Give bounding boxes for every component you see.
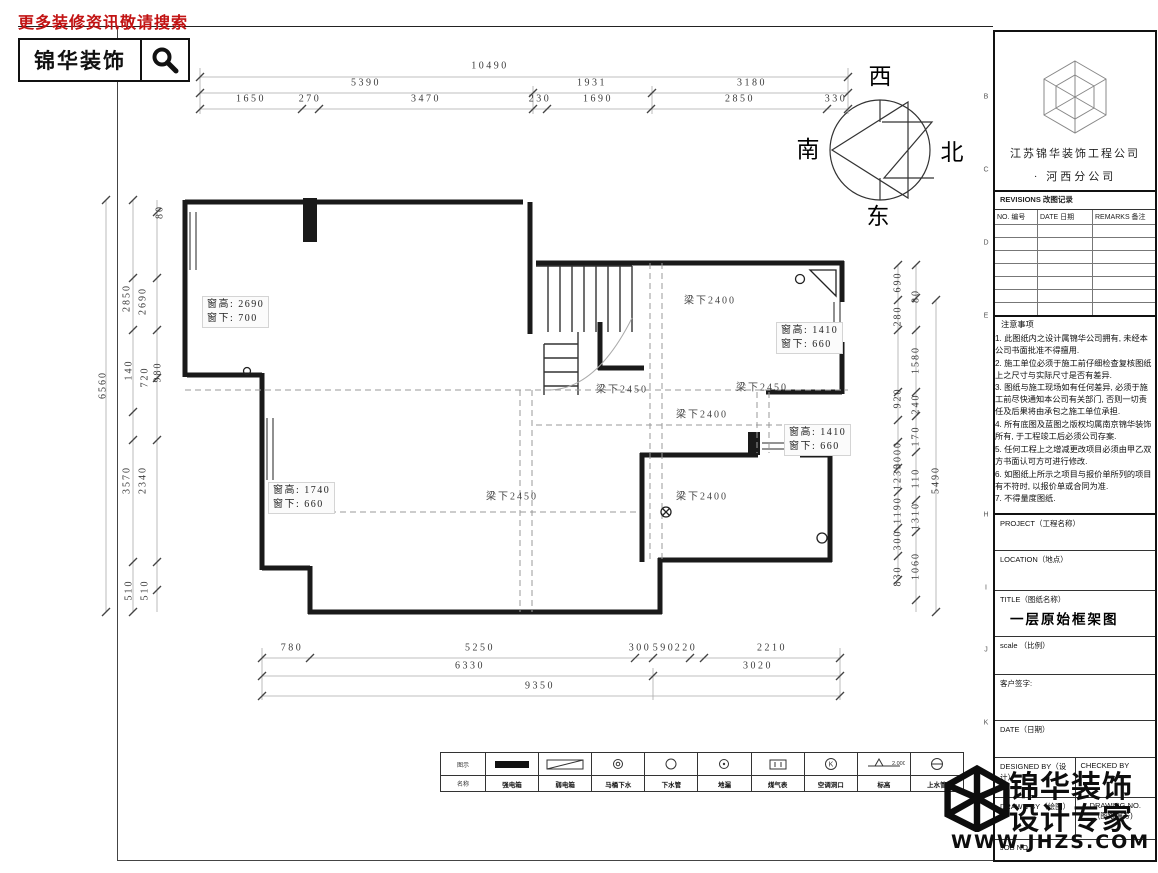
dim-label: 220 bbox=[675, 643, 698, 654]
revision-empty-row bbox=[995, 251, 1155, 264]
legend-item-meter-box: 煤气表 bbox=[752, 753, 805, 791]
compass-label: 东 bbox=[867, 197, 890, 231]
dim-label: 3020 bbox=[743, 661, 773, 672]
level-mark-icon: 2.000 bbox=[863, 756, 905, 772]
beam-label: 梁下2450 bbox=[486, 488, 538, 503]
revisions-col-remarks: REMARKS 备注 bbox=[1093, 210, 1155, 224]
window-spec-label: 窗高: 1410窗下: 660 bbox=[784, 424, 851, 456]
compass-icon bbox=[830, 100, 934, 200]
revisions-title: REVISIONS 改图记录 bbox=[995, 192, 1155, 210]
dim-label: 140 bbox=[124, 360, 135, 381]
dim-label: 80 bbox=[155, 205, 166, 219]
dim-label: 780 bbox=[281, 643, 304, 654]
dim-label: 2210 bbox=[757, 643, 787, 654]
dim-label: H bbox=[983, 512, 988, 519]
watermark-url: WWW.JHZS.COM bbox=[951, 831, 1150, 853]
dim-label: 590 bbox=[653, 643, 676, 654]
note-item: 3. 图纸与施工现场如有任何差异, 必须于施工前尽快通知本公司有关部门, 否则一… bbox=[995, 382, 1155, 418]
title-field: TITLE（图纸名称） 一层原始框架图 bbox=[995, 591, 1155, 637]
company-branch: · 河西分公司 bbox=[1034, 168, 1116, 184]
legend-item-level-mark: 2.000标高 bbox=[858, 753, 911, 791]
beam-label: 梁下2400 bbox=[676, 488, 728, 503]
dim-label: 1310 bbox=[911, 502, 922, 530]
dim-label: 240 bbox=[911, 394, 922, 415]
note-item: 4. 所有底图及蓝图之版权均属南京锦华装饰所有, 于工程竣工后必须公司存案. bbox=[995, 419, 1155, 443]
dim-label: 1580 bbox=[911, 346, 922, 374]
circle-k-icon: K bbox=[810, 756, 852, 772]
revisions-col-date: DATE 日期 bbox=[1038, 210, 1093, 224]
window-spec-label: 窗高: 1410窗下: 660 bbox=[776, 322, 843, 354]
dim-label: B bbox=[984, 94, 989, 101]
dim-label: 1060 bbox=[911, 552, 922, 580]
solid-rect-icon bbox=[491, 756, 533, 772]
note-item: 2. 施工单位必须于施工前仔细检查复核图纸上之尺寸与实际尺寸是否有差异. bbox=[995, 358, 1155, 382]
compass-label: 北 bbox=[941, 133, 964, 167]
note-item: 7. 不得量度图纸. bbox=[995, 493, 1155, 505]
watermark: 锦华装饰 设计专家 WWW.JHZS.COM bbox=[933, 760, 1158, 860]
dim-label: K bbox=[984, 720, 989, 727]
dim-label: 980 bbox=[153, 362, 164, 383]
dim-label: 270 bbox=[299, 94, 322, 105]
circle-dot-icon bbox=[703, 756, 745, 772]
dim-label: 3470 bbox=[411, 94, 441, 105]
dim-label: 80 bbox=[911, 289, 922, 303]
beam-label: 梁下2450 bbox=[596, 381, 648, 396]
dim-label: 300 bbox=[629, 643, 652, 654]
project-field: PROJECT（工程名称） bbox=[995, 515, 1155, 551]
beam-label: 梁下2400 bbox=[684, 292, 736, 307]
dim-label: 1650 bbox=[236, 94, 266, 105]
legend-symbol-header: 图示 bbox=[457, 760, 469, 769]
compass-label: 西 bbox=[869, 57, 892, 91]
revisions-col-no: NO. 编号 bbox=[995, 210, 1038, 224]
revision-empty-row bbox=[995, 264, 1155, 277]
legend-item-circle-double: 马桶下水 bbox=[592, 753, 645, 791]
dim-label: 830 bbox=[893, 566, 904, 587]
circle-double-icon bbox=[597, 756, 639, 772]
dim-label: 3570 bbox=[122, 466, 133, 494]
dim-label: 3180 bbox=[737, 78, 767, 89]
dim-label: 5390 bbox=[351, 78, 381, 89]
dim-label: D bbox=[983, 240, 988, 247]
drawing-sheet: 更多装修资讯敬请搜索 锦华装饰 bbox=[0, 0, 1158, 873]
dim-label: 5490 bbox=[931, 466, 942, 494]
window-spec-label: 窗高: 1740窗下: 660 bbox=[268, 482, 335, 514]
compass-label: 南 bbox=[797, 130, 820, 164]
revision-empty-row bbox=[995, 238, 1155, 251]
dim-label: 230 bbox=[529, 94, 552, 105]
legend-item-circle: 下水管 bbox=[645, 753, 698, 791]
dim-label: 1931 bbox=[577, 78, 607, 89]
client-sign-field: 客户签字: bbox=[995, 675, 1155, 721]
note-item: 1. 此图纸内之设计属锦华公司拥有, 未经本公司书面批准不得擅用. bbox=[995, 333, 1155, 357]
diag-rect-icon bbox=[544, 756, 586, 772]
dim-label: 2850 bbox=[122, 284, 133, 312]
dim-label: 330 bbox=[825, 94, 848, 105]
dim-label: I bbox=[985, 585, 987, 592]
dim-label: 720 bbox=[140, 367, 151, 388]
dim-label: 920 bbox=[893, 388, 904, 409]
legend-item-diag-rect: 弱电箱 bbox=[539, 753, 592, 791]
dim-label: 510 bbox=[124, 580, 135, 601]
dim-label: 10490 bbox=[471, 61, 509, 72]
dim-label: 5250 bbox=[465, 643, 495, 654]
dim-label: 280 bbox=[893, 306, 904, 327]
floor-plan-drawing bbox=[0, 0, 1158, 873]
revision-empty-row bbox=[995, 303, 1155, 315]
company-cube-logo bbox=[1036, 57, 1114, 137]
revision-empty-row bbox=[995, 225, 1155, 238]
beam-label: 梁下2450 bbox=[736, 379, 788, 394]
notes-section: 注意事项 1. 此图纸内之设计属锦华公司拥有, 未经本公司书面批准不得擅用.2.… bbox=[995, 317, 1155, 515]
location-field: LOCATION（地点） bbox=[995, 551, 1155, 591]
dim-label: C bbox=[983, 167, 988, 174]
dim-label: 9350 bbox=[525, 681, 555, 692]
dim-label: 2690 bbox=[138, 287, 149, 315]
dim-label: 6560 bbox=[98, 371, 109, 399]
legend-name-header: 名称 bbox=[457, 779, 469, 788]
dim-label: J bbox=[984, 647, 988, 654]
meter-box-icon bbox=[757, 756, 799, 772]
window-spec-label: 窗高: 2690窗下: 700 bbox=[202, 296, 269, 328]
circle-icon bbox=[650, 756, 692, 772]
svg-text:2.000: 2.000 bbox=[892, 761, 905, 767]
company-logo-section: 江苏锦华装饰工程公司 · 河西分公司 bbox=[995, 32, 1155, 192]
dim-label: 510 bbox=[140, 580, 151, 601]
dim-label: 110 bbox=[911, 468, 922, 489]
svg-text:K: K bbox=[828, 762, 833, 769]
dim-label: 2340 bbox=[138, 466, 149, 494]
revisions-table: NO. 编号 DATE 日期 REMARKS 备注 bbox=[995, 210, 1155, 317]
dim-label: 300 bbox=[893, 530, 904, 551]
legend-item-circle-dot: 地漏 bbox=[698, 753, 751, 791]
notes-title: 注意事项 bbox=[1001, 319, 1155, 331]
date-field: DATE（日期） bbox=[995, 721, 1155, 758]
scale-field: scale （比例） bbox=[995, 637, 1155, 675]
title-block: 江苏锦华装饰工程公司 · 河西分公司 REVISIONS 改图记录 NO. 编号… bbox=[993, 30, 1157, 862]
legend-table: 图示名称强电箱弱电箱马桶下水下水管地漏煤气表K空调洞口2.000标高上水管 bbox=[440, 752, 964, 792]
dim-label: 1190 bbox=[893, 496, 904, 524]
dim-label: 1690 bbox=[583, 94, 613, 105]
revision-empty-row bbox=[995, 277, 1155, 290]
watermark-cube-logo bbox=[941, 764, 1013, 832]
note-item: 6. 如图纸上所示之项目与报价单所列的项目有不符时, 以报价单或合同为准. bbox=[995, 469, 1155, 493]
dim-label: 6330 bbox=[455, 661, 485, 672]
dim-label: 1230 bbox=[893, 462, 904, 490]
drawing-title: 一层原始框架图 bbox=[1010, 608, 1150, 628]
beam-label: 梁下2400 bbox=[676, 406, 728, 421]
revision-empty-row bbox=[995, 290, 1155, 303]
legend-item-circle-k: K空调洞口 bbox=[805, 753, 858, 791]
dim-label: 690 bbox=[893, 272, 904, 293]
dim-label: E bbox=[984, 313, 989, 320]
note-item: 5. 任何工程上之增减更改项目必须由甲乙双方书面认可方可进行修改. bbox=[995, 444, 1155, 468]
company-name: 江苏锦华装饰工程公司 bbox=[1010, 145, 1140, 161]
dim-label: 2850 bbox=[725, 94, 755, 105]
legend-item-solid-rect: 强电箱 bbox=[486, 753, 539, 791]
dim-label: 170 bbox=[911, 426, 922, 447]
